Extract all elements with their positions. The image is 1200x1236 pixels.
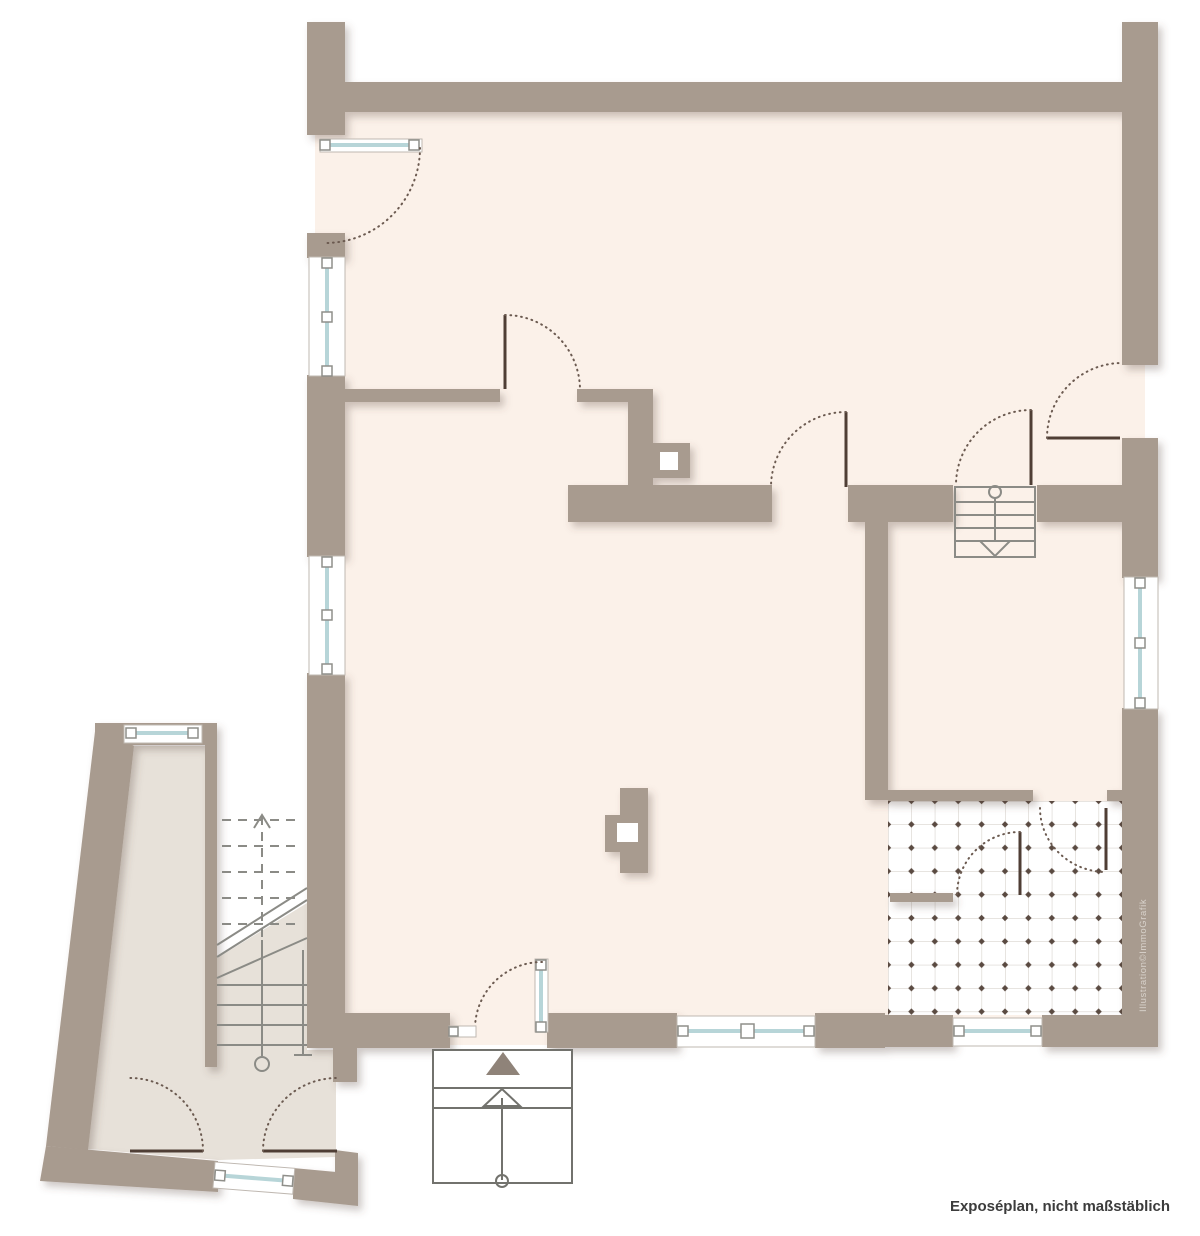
wall-segment: [345, 82, 1158, 112]
chimney-flue-hole: [617, 823, 638, 842]
stair-direction-circle: [255, 1057, 269, 1071]
wall-segment: [547, 1013, 677, 1048]
wall-segment: [1122, 22, 1158, 365]
wall-segment: [568, 485, 772, 522]
wall-segment: [848, 485, 953, 522]
floor-plan-page: Illustration©ImmoGrafik Exposéplan, nich…: [0, 0, 1200, 1236]
wall-segment: [1042, 1015, 1158, 1047]
chimney-flue-hole: [660, 452, 678, 470]
stairwell-divider-wall: [205, 745, 217, 1067]
footer-note: Exposéplan, nicht maßstäblich: [950, 1198, 1170, 1215]
wall-segment: [890, 893, 953, 902]
floors: [88, 95, 1145, 1160]
wall-segment: [307, 1013, 450, 1048]
wall-segment: [1037, 485, 1123, 522]
wall-segment: [307, 233, 345, 258]
bathroom-tiles: [888, 801, 1122, 1015]
wall-segment: [307, 673, 345, 1048]
wall-segment: [345, 389, 500, 402]
wall-segment: [865, 522, 888, 800]
window-left-upper: [309, 257, 345, 376]
wall-segment: [577, 389, 653, 402]
wall-segment: [333, 1048, 357, 1082]
wall-segment: [1122, 438, 1158, 578]
wall-segment: [307, 22, 345, 135]
window-bathroom: [953, 1018, 1042, 1046]
window-left-lower: [309, 556, 345, 675]
window-annex-bottom: [213, 1162, 295, 1194]
wall-segment: [307, 375, 345, 557]
annex-wall-corner: [335, 1150, 358, 1204]
wall-segment: [1107, 790, 1123, 801]
wall-segment: [888, 790, 1033, 801]
window-right: [1124, 577, 1158, 709]
floor-plan-svg: Illustration©ImmoGrafik Exposéplan, nich…: [0, 0, 1200, 1236]
wall-segment: [815, 1013, 885, 1048]
window-bottom-main: [677, 1016, 815, 1047]
watermark-text: Illustration©ImmoGrafik: [1138, 899, 1149, 1012]
wall-segment: [885, 1015, 953, 1047]
window-annex-top: [124, 725, 202, 743]
wall-segment: [628, 402, 653, 487]
entrance-steps: [433, 1050, 572, 1187]
